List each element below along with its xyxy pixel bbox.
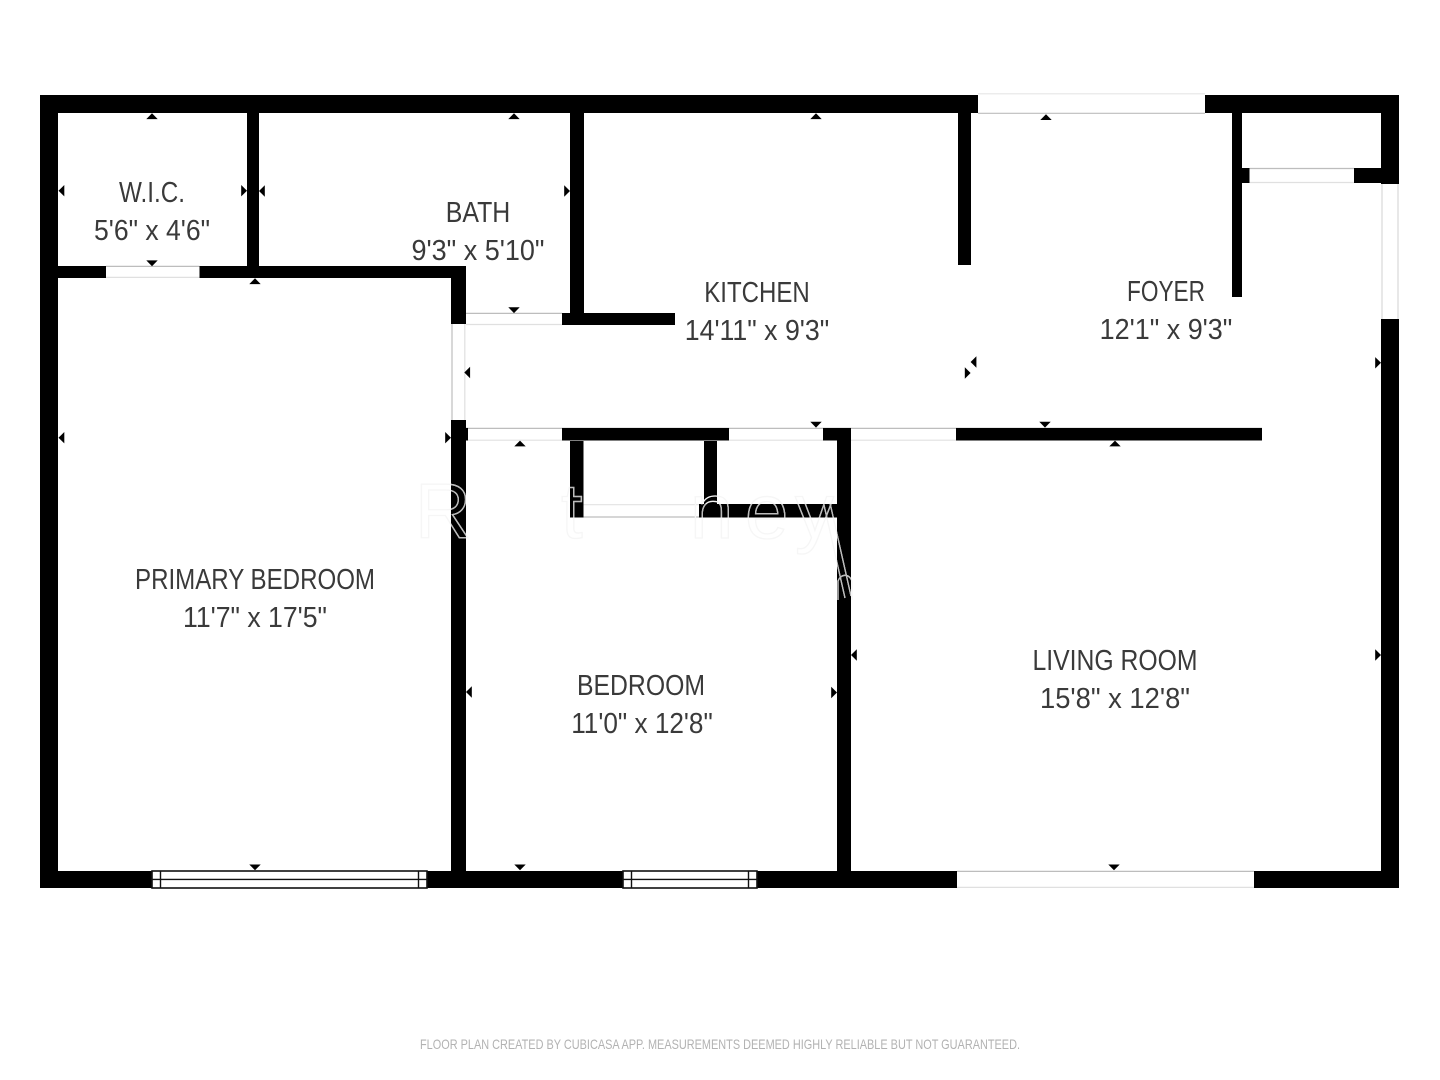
svg-text:5'6" x 4'6": 5'6" x 4'6" (94, 215, 210, 247)
svg-text:11'7" x 17'5": 11'7" x 17'5" (183, 602, 327, 634)
svg-text:11'0" x 12'8": 11'0" x 12'8" (571, 708, 713, 740)
svg-text:FLOOR PLAN CREATED BY CUBICASA: FLOOR PLAN CREATED BY CUBICASA APP. MEAS… (420, 1036, 1020, 1052)
svg-text:15'8" x 12'8": 15'8" x 12'8" (1040, 683, 1190, 715)
svg-text:BEDROOM: BEDROOM (577, 670, 705, 702)
svg-text:LIVING ROOM: LIVING ROOM (1033, 645, 1198, 677)
svg-text:PRIMARY BEDROOM: PRIMARY BEDROOM (135, 564, 375, 596)
svg-text:9'3" x 5'10": 9'3" x 5'10" (412, 235, 545, 267)
svg-text:14'11" x 9'3": 14'11" x 9'3" (685, 315, 830, 347)
svg-text:W.I.C.: W.I.C. (119, 177, 185, 209)
svg-text:FOYER: FOYER (1127, 276, 1205, 308)
svg-text:KITCHEN: KITCHEN (704, 277, 810, 309)
svg-text:12'1" x 9'3": 12'1" x 9'3" (1100, 314, 1233, 346)
svg-text:BATH: BATH (446, 197, 511, 229)
